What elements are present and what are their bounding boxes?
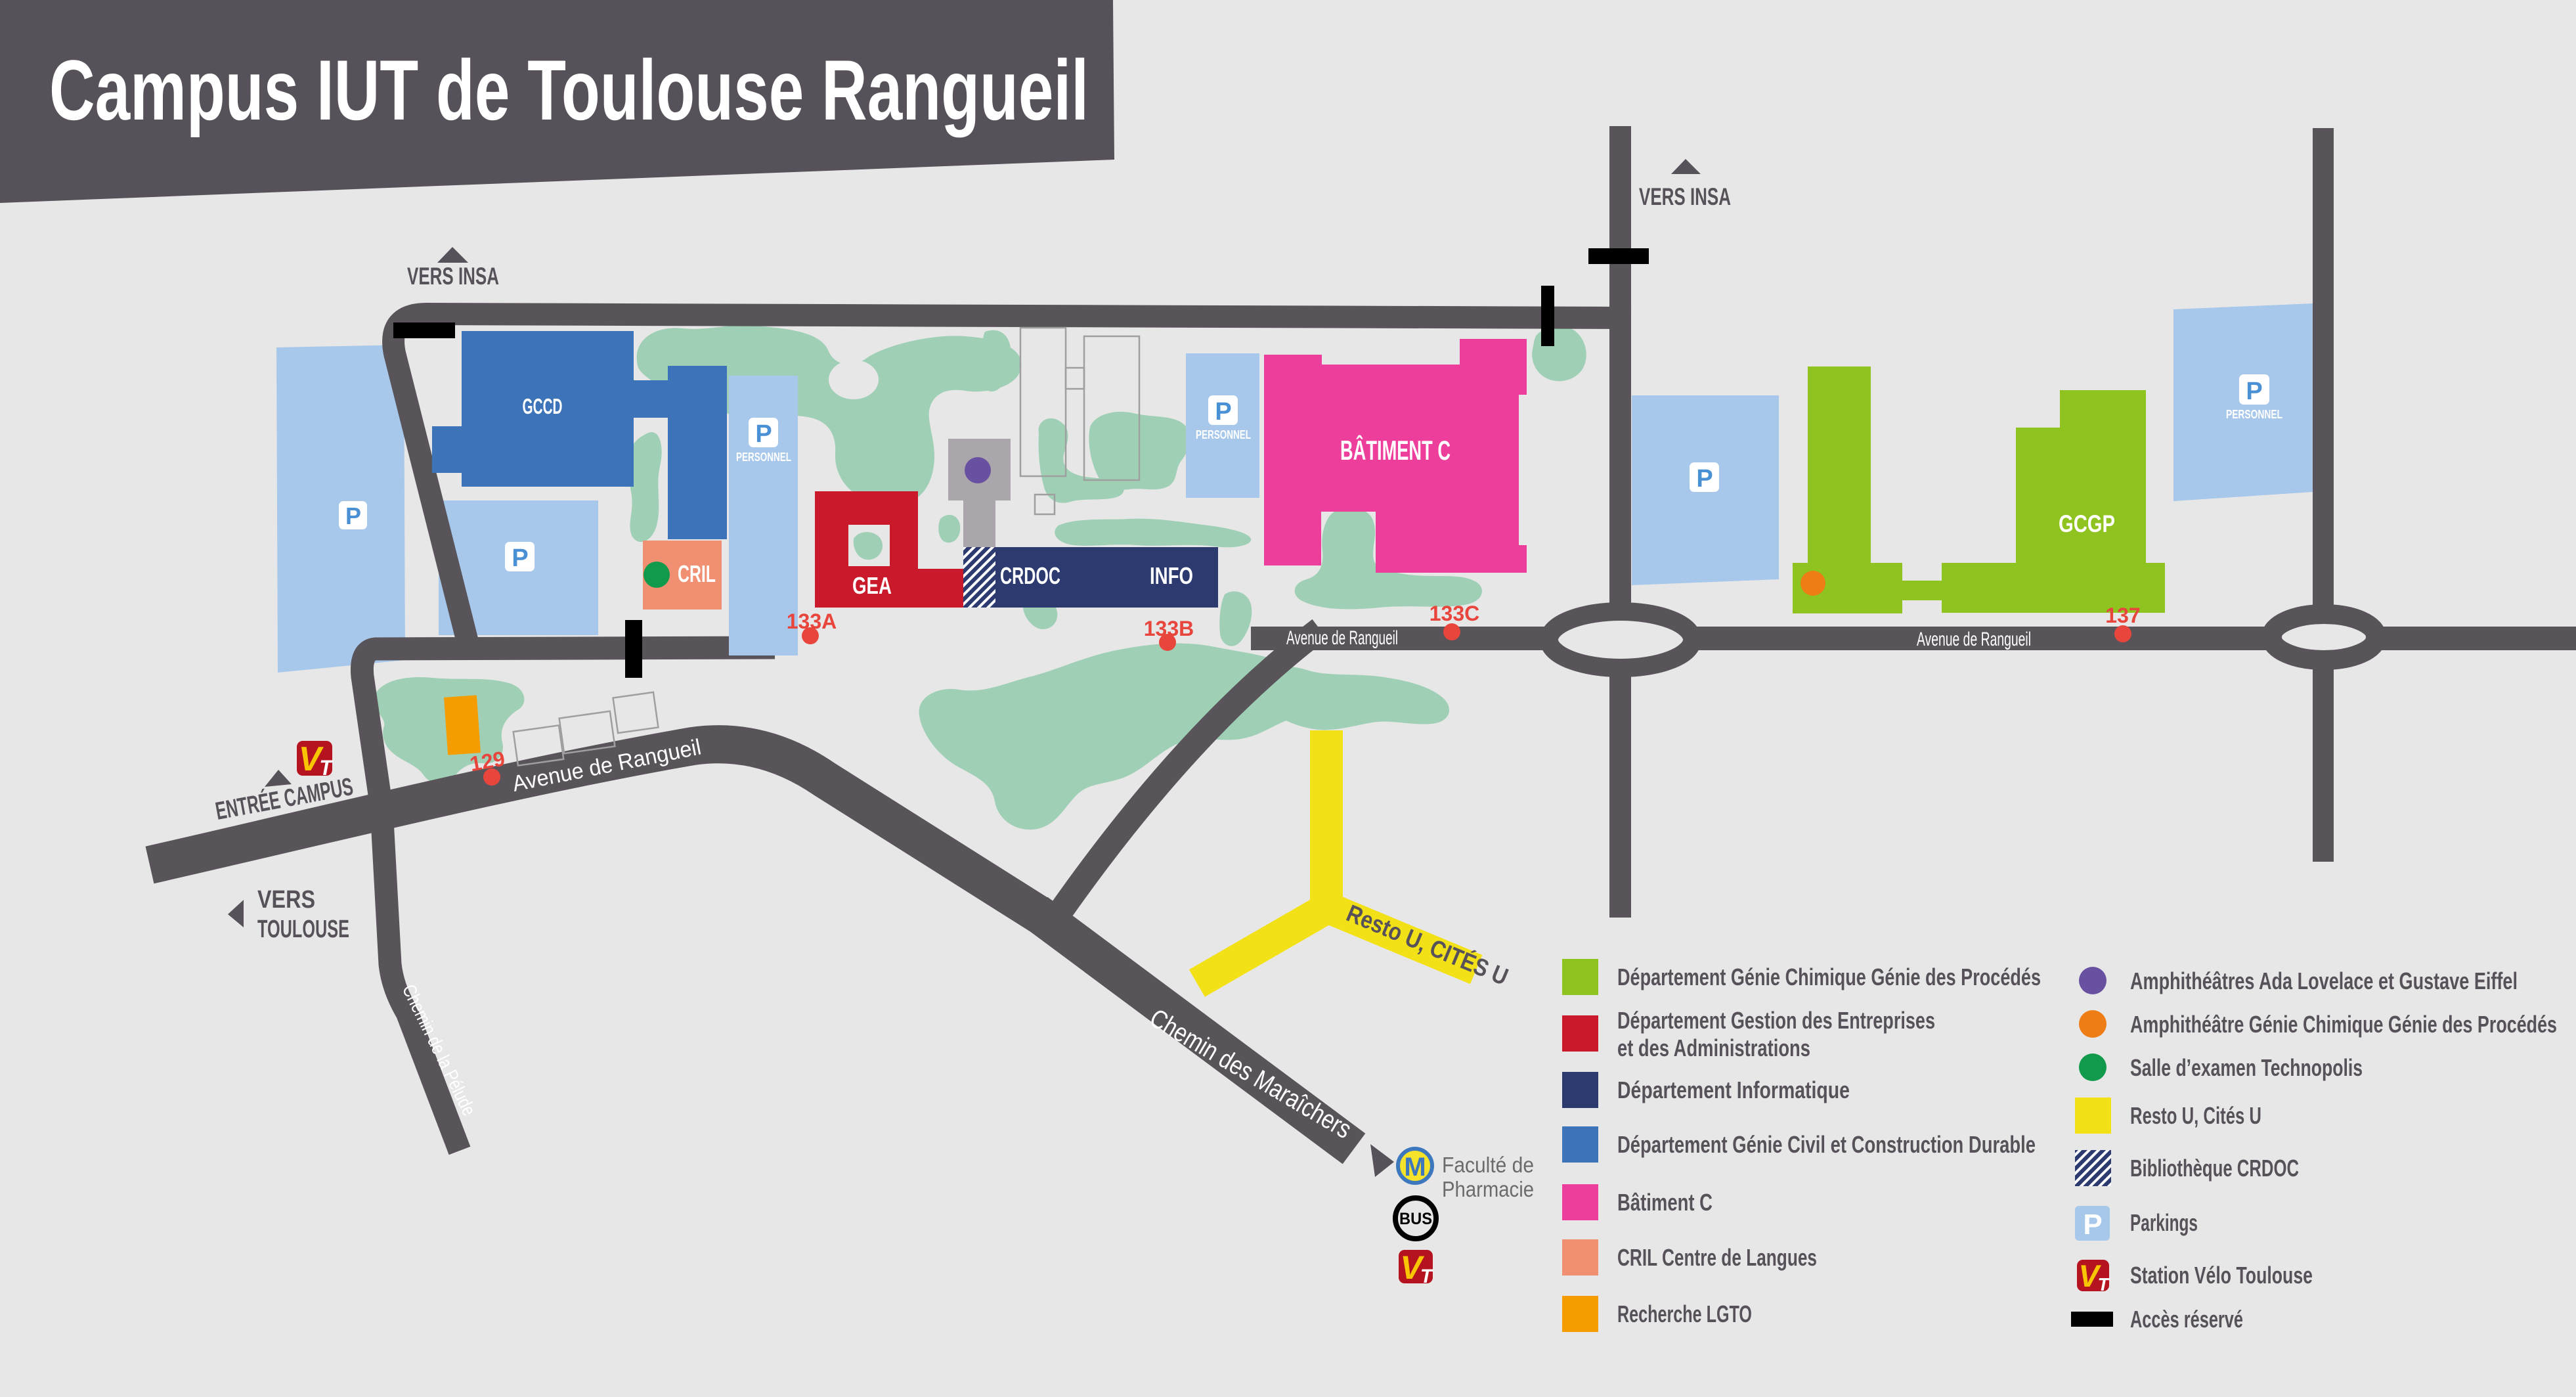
svg-text:M: M (1404, 1153, 1426, 1182)
svg-text:GEA: GEA (852, 572, 892, 599)
svg-text:Pharmacie: Pharmacie (1442, 1177, 1534, 1201)
svg-text:Accès réservé: Accès réservé (2130, 1306, 2243, 1333)
svg-text:PERSONNEL: PERSONNEL (736, 451, 791, 464)
svg-text:T: T (2097, 1274, 2110, 1295)
svg-text:CRIL: CRIL (678, 560, 716, 587)
svg-text:VERS INSA: VERS INSA (1639, 183, 1731, 210)
svg-text:Resto U, Cités U: Resto U, Cités U (2130, 1102, 2261, 1129)
svg-text:Faculté de: Faculté de (1442, 1153, 1534, 1177)
svg-text:Amphithéâtres Ada Lovelace et: Amphithéâtres Ada Lovelace et Gustave Ei… (2130, 967, 2518, 994)
svg-text:VERS: VERS (257, 886, 315, 914)
svg-text:T: T (1420, 1266, 1434, 1287)
svg-text:GCCD: GCCD (523, 394, 563, 418)
svg-text:INFO: INFO (1150, 562, 1193, 589)
svg-text:Bibliothèque CRDOC: Bibliothèque CRDOC (2130, 1155, 2299, 1182)
svg-text:Salle d’examen Technopolis: Salle d’examen Technopolis (2130, 1054, 2363, 1081)
svg-text:P: P (2083, 1209, 2102, 1241)
svg-text:PERSONNEL: PERSONNEL (1196, 428, 1251, 441)
svg-text:GCGP: GCGP (2059, 510, 2115, 537)
svg-text:PERSONNEL: PERSONNEL (2226, 408, 2282, 421)
svg-text:P: P (512, 544, 528, 572)
svg-text:BÂTIMENT C: BÂTIMENT C (1340, 434, 1451, 466)
svg-text:Département Génie Civil et Con: Département Génie Civil et Construction … (1617, 1131, 2036, 1158)
svg-text:133A: 133A (787, 610, 837, 633)
svg-text:P: P (1215, 398, 1231, 426)
svg-text:CRIL Centre de Langues: CRIL Centre de Langues (1617, 1244, 1817, 1271)
svg-text:Avenue de Rangueil: Avenue de Rangueil (1917, 629, 2031, 650)
svg-text:Parkings: Parkings (2130, 1209, 2198, 1236)
svg-text:Recherche LGTO: Recherche LGTO (1617, 1300, 1752, 1327)
svg-text:Département Informatique: Département Informatique (1617, 1076, 1850, 1103)
svg-text:P: P (345, 502, 361, 529)
svg-text:Département Gestion des Entrep: Département Gestion des Entreprises (1617, 1007, 1935, 1034)
svg-text:T: T (319, 756, 334, 780)
svg-text:Département Génie Chimique Gén: Département Génie Chimique Génie des Pro… (1617, 964, 2041, 990)
svg-text:133C: 133C (1430, 602, 1480, 625)
svg-text:137: 137 (2105, 604, 2140, 627)
svg-text:TOULOUSE: TOULOUSE (257, 916, 349, 943)
svg-text:Campus IUT de Toulouse Ranguei: Campus IUT de Toulouse Rangueil (49, 42, 1089, 138)
svg-text:Amphithéâtre Génie Chimique Gé: Amphithéâtre Génie Chimique Génie des Pr… (2130, 1011, 2557, 1038)
svg-text:P: P (2246, 378, 2262, 405)
svg-text:Bâtiment C: Bâtiment C (1617, 1189, 1713, 1216)
svg-text:VERS INSA: VERS INSA (407, 263, 499, 290)
svg-text:Avenue de Rangueil: Avenue de Rangueil (1286, 627, 1398, 649)
svg-text:et des Administrations: et des Administrations (1617, 1034, 1810, 1061)
svg-text:P: P (755, 420, 772, 448)
svg-text:CRDOC: CRDOC (1000, 562, 1060, 589)
svg-text:P: P (1696, 465, 1713, 493)
svg-text:BUS: BUS (1399, 1210, 1432, 1228)
svg-text:Station Vélo Toulouse: Station Vélo Toulouse (2130, 1262, 2313, 1289)
svg-text:133B: 133B (1144, 617, 1194, 640)
